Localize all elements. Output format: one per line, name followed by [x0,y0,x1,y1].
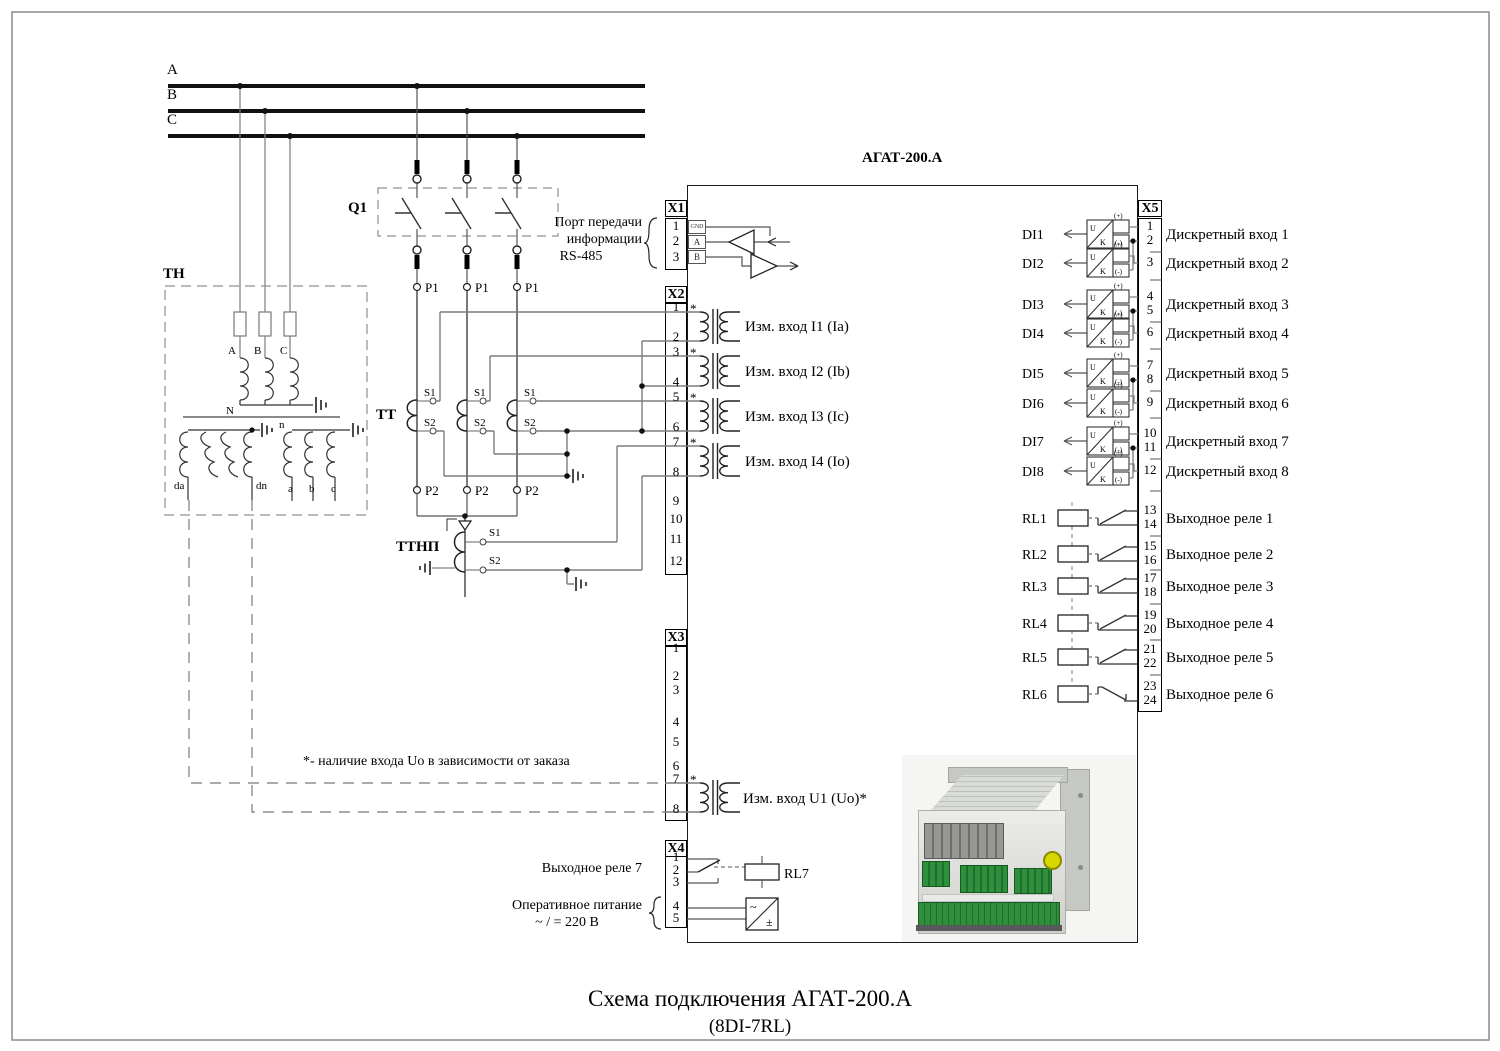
x3-terminal: 5 [665,735,687,749]
ct-primary-wires [417,291,517,486]
x4-brace [649,897,661,929]
photo-gray-terminal-row [924,823,1004,859]
bus-c-label: C [167,112,177,129]
x5-terminal: 24 [1138,693,1162,707]
photo-ground-badge [1043,851,1062,870]
x1-pin-a: A [688,235,706,249]
x5-terminal: 15 [1138,539,1162,553]
x5-terminal: 8 [1138,372,1162,386]
photo-base [916,925,1062,931]
rl-labels: Выходное реле 1 Выходное реле 2 Выходное… [1166,511,1274,703]
vt-dn: dn [256,480,268,492]
x5-terminal: 22 [1138,656,1162,670]
rl5-label: Выходное реле 5 [1166,650,1273,666]
x2-terminal: 10 [665,512,687,526]
photo-green-terminal-block [1014,868,1052,894]
bus-lines [168,86,645,136]
x2-terminal: 7 [665,435,687,449]
x5-terminal: 21 [1138,642,1162,656]
x4-terminal: 3 [665,875,687,889]
bus-b-label: B [167,87,177,104]
p2-label: P2 [475,483,489,498]
x5-terminal: 18 [1138,585,1162,599]
port-label-line3: RS-485 [520,249,642,265]
device-name-label: АГАТ-200.А [862,150,942,167]
x5-terminal: 3 [1138,255,1162,269]
vt-sec-neutral: n [279,419,285,431]
vt-c: c [331,483,336,495]
x1-pin-b: B [688,250,706,264]
vt-label: ТН [163,266,185,283]
x3-terminal: 7 [665,772,687,786]
di-labels: Дискретный вход 1 Дискретный вход 2 Диск… [1166,227,1289,480]
bus-a-label: A [167,62,178,79]
x5-header: X5 [1138,200,1162,217]
rl4-label: Выходное реле 4 [1166,616,1274,632]
x5-terminal: 12 [1138,463,1162,477]
di7-label: Дискретный вход 7 [1166,434,1289,450]
s1-label: S1 [474,387,486,399]
x1-terminal: 3 [665,250,687,264]
x5-terminal: 10 [1138,426,1162,440]
q1-poles [395,86,521,291]
diagram-title: Схема подключения АГАТ-200.А [0,986,1500,1012]
photo-screw-hole [1078,865,1083,870]
di5-label: Дискретный вход 5 [1166,366,1289,382]
photo-number-strip [922,894,1054,902]
x5-terminal: 9 [1138,395,1162,409]
x5-terminal: 23 [1138,679,1162,693]
x2-terminal: 11 [665,532,687,546]
photo-green-terminal-block [960,865,1008,893]
x5-terminal: 11 [1138,440,1162,454]
x5-terminal: 20 [1138,622,1162,636]
relay7-label: Выходное реле 7 [498,861,642,877]
ttnp-s1-label: S1 [489,527,501,539]
x2-terminal: 12 [665,554,687,568]
x5-terminal: 6 [1138,325,1162,339]
s2-label: S2 [524,417,536,429]
rl2-label: Выходное реле 2 [1166,547,1273,563]
x5-terminal: 16 [1138,553,1162,567]
p2-label: P2 [425,483,439,498]
x3-terminal: 8 [665,802,687,816]
di4-label: Дискретный вход 4 [1166,326,1289,342]
di1-label: Дискретный вход 1 [1166,227,1289,243]
s1-label: S1 [524,387,536,399]
port-label-line1: Порт передачи [520,215,642,231]
rl6-label: Выходное реле 6 [1166,687,1274,703]
di2-label: Дискретный вход 2 [1166,256,1289,272]
x5-terminal: 13 [1138,503,1162,517]
x2-terminal: 4 [665,375,687,389]
x3-terminal: 2 [665,669,687,683]
power-label-line2: ~ / = 220 В [492,915,642,931]
vt-phase-a: A [228,345,236,357]
x2-terminal: 5 [665,390,687,404]
ground-symbols-ct [573,469,586,591]
vt-internals [180,312,363,501]
vt-da: da [174,480,185,492]
x2-terminal: 1 [665,300,687,314]
s2-label: S2 [424,417,436,429]
di6-label: Дискретный вход 6 [1166,396,1289,412]
x1-brace [644,218,657,268]
vt-phase-c: C [280,345,287,357]
vt-b: b [309,483,315,495]
schematic-page: X1 X2 X3 X4 X5 [0,0,1500,1051]
x3-terminal: 4 [665,715,687,729]
rl1-label: Выходное реле 1 [1166,511,1273,527]
p1-label: P1 [525,280,539,295]
ttnp-s2-label: S2 [489,555,501,567]
x5-terminal: 14 [1138,517,1162,531]
ttnp-label: ТТНП [396,539,439,556]
diagram-subtitle: (8DI-7RL) [0,1016,1500,1038]
x5-terminal: 19 [1138,608,1162,622]
x1-pin-gnd: GND [688,220,706,234]
photo-green-terminal-block [922,861,950,887]
p1-label: P1 [475,280,489,295]
rl3-label: Выходное реле 3 [1166,579,1273,595]
x1-header: X1 [665,200,687,217]
photo-screw-hole [1078,793,1083,798]
x5-terminal: 7 [1138,358,1162,372]
photo-bottom-terminal-strip [918,902,1060,926]
x3-terminal: 1 [665,641,687,655]
vt-tap-wires [240,86,290,358]
x2-terminal: 6 [665,420,687,434]
x2-terminal: 9 [665,494,687,508]
vt-dashed-box [165,286,367,515]
vt-a: a [288,483,293,495]
port-label-line2: информации [520,232,642,248]
power-label-line1: Оперативное питание [492,898,642,914]
p2-label: P2 [525,483,539,498]
note-label: *- наличие входа Uo в зависимости от зак… [303,754,570,770]
di3-label: Дискретный вход 3 [1166,297,1289,313]
p2-circles [414,487,521,494]
pole-labels: P1 P1 P1 P2 P2 P2 [425,280,539,498]
x5-terminal: 2 [1138,233,1162,247]
ct-secondary [407,398,536,434]
di8-label: Дискретный вход 8 [1166,464,1289,480]
vt-phase-b: B [254,345,261,357]
x2-terminal: 2 [665,330,687,344]
x5-terminal: 1 [1138,219,1162,233]
x1-terminal: 1 [665,219,687,233]
x4-terminal: 5 [665,911,687,925]
x2-wires [436,312,700,584]
x5-terminal: 5 [1138,303,1162,317]
s1-label: S1 [424,387,436,399]
device-photo [902,755,1136,942]
vt-letter-labels: A B C N n da dn a b c [174,345,336,495]
x5-terminal: 17 [1138,571,1162,585]
s2-label: S2 [474,417,486,429]
p1-label: P1 [425,280,439,295]
x5-terminal: 4 [1138,289,1162,303]
ct-terminal-labels: S1 S1 S1 S2 S2 S2 S1 S2 [424,387,536,567]
x2-terminal: 3 [665,345,687,359]
x2-terminal: 8 [665,465,687,479]
vt-neutral: N [226,405,234,417]
x3-terminal: 3 [665,683,687,697]
q1-label: Q1 [348,200,367,217]
ct-label: ТТ [376,407,396,424]
x1-terminal: 2 [665,234,687,248]
